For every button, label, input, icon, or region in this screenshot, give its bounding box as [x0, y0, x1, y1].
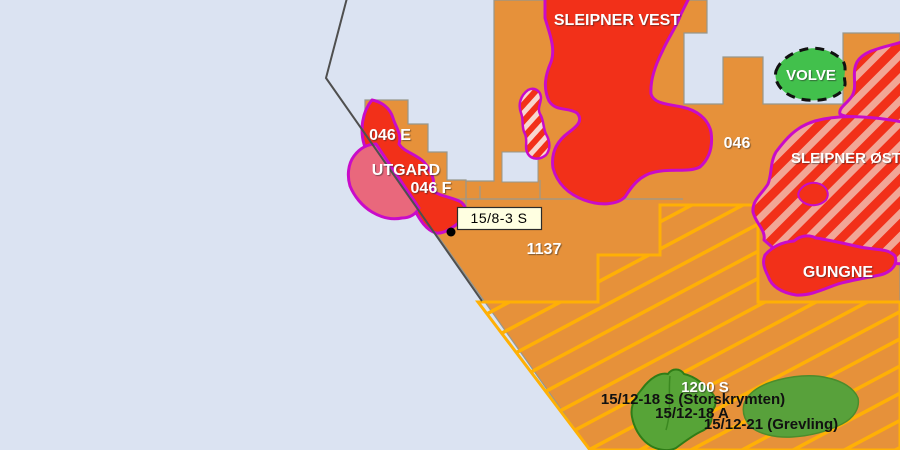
label-sleipner-vest: SLEIPNER VEST: [554, 12, 680, 29]
label-block-046e: 046 E: [369, 127, 411, 144]
label-block-046: 046: [724, 135, 751, 152]
map-viewport[interactable]: SLEIPNER VEST VOLVE 046 SLEIPNER ØST GUN…: [0, 0, 900, 450]
label-sleipner-ost: SLEIPNER ØST: [791, 150, 900, 167]
label-volve: VOLVE: [786, 67, 836, 84]
label-utgard: UTGARD: [372, 162, 440, 179]
tooltip-label: 15/8-3 S: [471, 210, 528, 226]
tooltip: 15/8-3 S: [458, 208, 542, 230]
label-block-046f: 046 F: [411, 180, 452, 197]
label-block-1137: 1137: [527, 241, 562, 258]
map-canvas[interactable]: SLEIPNER VEST VOLVE 046 SLEIPNER ØST GUN…: [0, 0, 900, 450]
label-gungne: GUNGNE: [803, 264, 874, 281]
well-marker-dot[interactable]: [447, 228, 456, 237]
field-sleipner-ost-island[interactable]: [798, 183, 827, 205]
label-disc-grevling: 15/12-21 (Grevling): [704, 416, 838, 433]
